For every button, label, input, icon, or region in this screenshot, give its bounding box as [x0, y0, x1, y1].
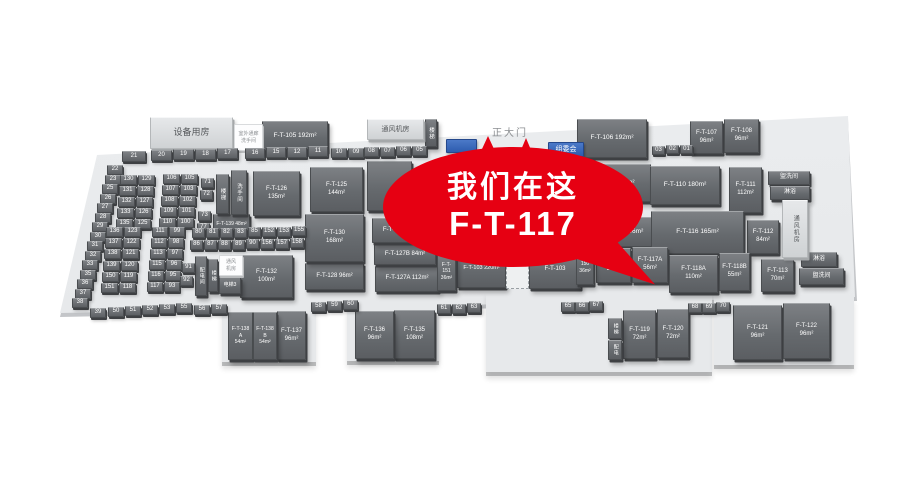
booth-20: 20 [151, 150, 172, 161]
booth-85: 85 [248, 227, 261, 237]
booth-36: 36 [77, 279, 93, 289]
booth-19: 19 [173, 149, 194, 160]
booth-151: 151 [101, 283, 118, 293]
booth-137: 137 [105, 238, 122, 248]
booth-52: 52 [142, 305, 158, 315]
booth-152: 152 [262, 227, 276, 237]
booth-25: 25 [102, 184, 118, 194]
booth-68: 68 [688, 303, 702, 313]
booth-113: 113 [150, 249, 166, 259]
room-equipment: 设备用房 [150, 117, 233, 149]
booth-ft-122: F-T-122 96m² [783, 303, 830, 359]
booth-82: 82 [220, 228, 233, 238]
booth-51: 51 [125, 306, 141, 316]
booth-118: 118 [119, 283, 136, 293]
booth-ft-108: F-T-108 96m² [724, 119, 759, 153]
booth-ft-119: F-T-119 72m² [623, 310, 656, 359]
booth-116: 116 [148, 271, 164, 281]
booth-02: 02 [666, 145, 679, 154]
booth-69: 69 [702, 303, 716, 313]
booth-83: 83 [234, 228, 247, 238]
booth-61: 61 [437, 304, 451, 314]
booth-156: 156 [260, 239, 274, 249]
booth-136: 136 [106, 227, 123, 237]
booth-57: 57 [211, 304, 227, 314]
booth-122: 122 [123, 238, 140, 248]
booth-21: 21 [122, 151, 146, 162]
booth-53: 53 [159, 304, 175, 314]
booth-22: 22 [107, 165, 123, 175]
booth-05: 05 [412, 146, 427, 156]
booth-102: 102 [179, 196, 196, 206]
booth-12: 12 [287, 147, 307, 158]
booth-07: 07 [380, 147, 395, 157]
booth-39: 39 [90, 308, 106, 318]
booth-03: 03 [652, 146, 665, 155]
booth-ft-121: F-T-121 96m² [733, 305, 782, 360]
main-gate-label: 正大门 [470, 124, 550, 139]
room-power-west: 配电间 [195, 256, 207, 296]
booth-150: 150 [102, 272, 119, 282]
booth-ft-136: F-T-136 96m² [355, 311, 394, 359]
booth-ft-137: F-T-137 96m² [277, 311, 306, 360]
booth-ft-126: F-T-126 135m² [253, 171, 300, 216]
booth-126: 126 [135, 208, 152, 218]
booth-90: 90 [246, 239, 259, 249]
booth-131: 131 [119, 186, 136, 196]
booth-112: 112 [151, 238, 167, 248]
booth-08: 08 [364, 147, 379, 157]
booth-15: 15 [266, 147, 286, 158]
booth-ft-135: F-T-135 108m² [394, 310, 435, 359]
room-stairs-sw: 楼梯 [208, 259, 218, 292]
booth-10: 10 [331, 148, 347, 158]
booth-108: 108 [161, 196, 178, 206]
booth-ft-125: F-T-125 144m² [310, 167, 363, 212]
booth-99: 99 [169, 227, 185, 237]
booth-ft-120: F-T-120 72m² [657, 309, 689, 358]
booth-119: 119 [120, 272, 137, 282]
booth-101: 101 [178, 207, 195, 217]
booth-127: 127 [136, 197, 153, 207]
booth-92: 92 [180, 276, 193, 286]
booth-133: 133 [117, 208, 134, 218]
booth-132: 132 [118, 197, 135, 207]
booth-59: 59 [327, 301, 342, 311]
booth-11: 11 [308, 146, 328, 157]
booth-50: 50 [108, 307, 124, 317]
booth-62: 62 [452, 304, 466, 314]
booth-67: 67 [589, 301, 603, 311]
booth-71: 71 [201, 178, 214, 188]
booth-18: 18 [195, 149, 216, 160]
booth-55: 55 [176, 303, 192, 313]
room-elevator-3: 电梯3 [219, 277, 241, 294]
booth-17: 17 [217, 148, 238, 159]
booth-38: 38 [72, 298, 88, 308]
booth-81: 81 [206, 228, 219, 238]
room-washroom-ne: 盥洗间 [768, 171, 810, 185]
booth-31: 31 [87, 241, 103, 251]
booth-ft-118a: F-T-118A 110m² [669, 255, 718, 293]
booth-88: 88 [218, 240, 231, 250]
booth-ft-118b: F-T-118B 55m² [719, 253, 750, 291]
booth-120: 120 [121, 261, 138, 271]
booth-16: 16 [245, 148, 265, 159]
booth-129: 129 [138, 175, 155, 185]
booth-121: 121 [122, 249, 139, 259]
booth-98: 98 [168, 238, 184, 248]
booth-66: 66 [575, 302, 589, 312]
room-washroom-west: 洗手间 [231, 170, 247, 215]
room-shower-ne: 淋浴 [770, 186, 810, 200]
booth-09: 09 [348, 148, 364, 158]
booth-138: 138 [104, 249, 121, 259]
booth-ft-113: F-T-113 70m² [761, 259, 794, 292]
booth-ft-112: F-T-112 84m² [747, 220, 779, 254]
booth-ft-130: F-T-130 168m² [305, 214, 364, 262]
booth-01: 01 [680, 145, 693, 154]
booth-ft-138a: F-T-138 A 54m² [228, 312, 253, 360]
exhibition-floorplan: 正大门 组委会 F-T-105 192m²F-T-106 192m²F-T-10… [0, 0, 900, 500]
booth-27: 27 [97, 203, 113, 213]
room-stairs-top: 楼梯 [425, 119, 437, 147]
booth-ft-111: F-T-111 112m² [729, 167, 762, 213]
booth-107: 107 [162, 185, 179, 195]
booth-93: 93 [164, 282, 180, 292]
booth-70: 70 [716, 302, 730, 312]
booth-130: 130 [120, 175, 137, 185]
booth-56: 56 [194, 305, 210, 315]
booth-155: 155 [292, 226, 306, 236]
booth-ft-110: F-T-110 180m² [650, 166, 720, 205]
booth-97: 97 [167, 249, 183, 259]
booth-95: 95 [165, 271, 181, 281]
booth-72: 72 [200, 190, 213, 200]
booth-89: 89 [232, 240, 245, 250]
room-washroom-se: 盥洗间 [799, 268, 844, 285]
booth-153: 153 [277, 227, 291, 237]
booth-91: 91 [182, 263, 195, 273]
booth-87: 87 [204, 240, 217, 250]
booth-106: 106 [163, 174, 180, 184]
booth-109: 109 [160, 207, 177, 217]
booth-128: 128 [137, 186, 154, 196]
booth-06: 06 [396, 146, 411, 156]
booth-60: 60 [343, 300, 358, 310]
booth-117: 117 [147, 282, 163, 292]
room-power-south: 配电 [608, 340, 622, 360]
booth-123: 123 [124, 227, 141, 237]
booth-58: 58 [311, 302, 326, 312]
booth-ft-106: F-T-106 192m² [577, 119, 647, 158]
booth-ft-132: F-T-132 100m² [240, 255, 293, 298]
booth-80: 80 [192, 228, 205, 238]
callout-booth-number: F-T-117 [449, 205, 577, 243]
booth-105: 105 [181, 174, 198, 184]
booth-33: 33 [82, 260, 98, 270]
room-stairs-west: 楼梯 [216, 174, 229, 214]
booth-115: 115 [149, 260, 165, 270]
callout-text: 我们在这 [447, 171, 579, 206]
booth-157: 157 [275, 239, 289, 249]
we-are-here-callout: 我们在这 F-T-117 [383, 147, 643, 267]
booth-158: 158 [290, 238, 304, 248]
booth-139: 139 [103, 261, 120, 271]
booth-ft-128: F-T-128 96m² [305, 263, 364, 290]
booth-103: 103 [180, 185, 197, 195]
booth-96: 96 [166, 260, 182, 270]
booth-65: 65 [561, 302, 575, 312]
booth-73: 73 [198, 211, 211, 221]
room-stairs-south: 楼梯 [608, 318, 622, 339]
booth-86: 86 [190, 240, 203, 250]
room-vent-east: 通风机房 [782, 200, 808, 258]
booth-63: 63 [467, 303, 481, 313]
booth-ft-107: F-T-107 96m² [690, 121, 723, 154]
room-vent-top: 通风机房 [367, 119, 424, 140]
room-vent-sw: 通风 机房 [219, 255, 243, 276]
room-outdoor-washroom: 室外通廊 洗手间 [234, 124, 263, 151]
booth-ft-127a: F-T-127A 112m² [375, 266, 439, 292]
booth-ft-138b: F-T-138 B 54m² [253, 312, 277, 360]
booth-111: 111 [152, 227, 168, 237]
